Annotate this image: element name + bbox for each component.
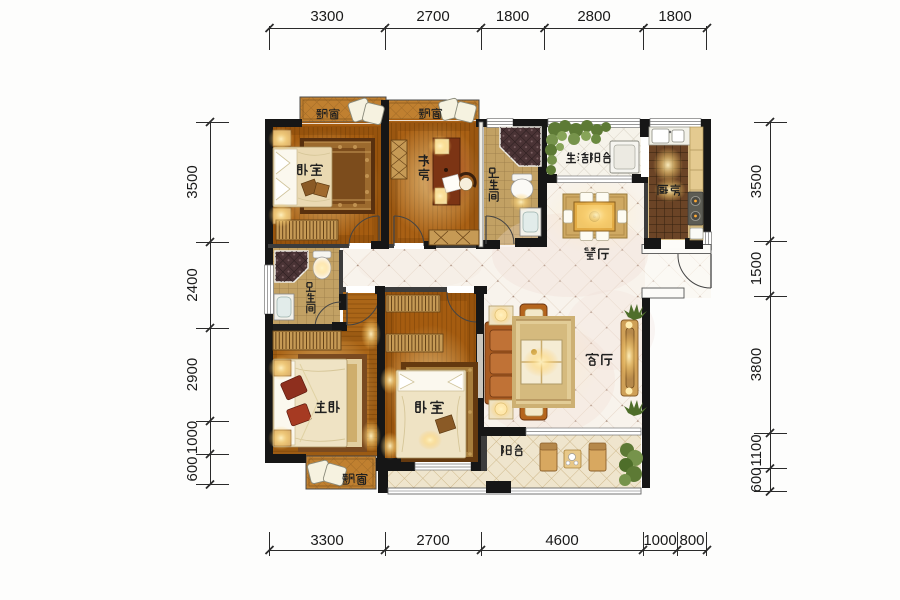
svg-text:1000: 1000 <box>184 421 201 454</box>
svg-text:1800: 1800 <box>658 8 691 25</box>
svg-text:3500: 3500 <box>184 165 201 198</box>
svg-text:1500: 1500 <box>748 252 765 285</box>
svg-text:600: 600 <box>184 456 201 481</box>
svg-text:3800: 3800 <box>748 348 765 381</box>
svg-text:3300: 3300 <box>310 532 343 549</box>
svg-text:1100: 1100 <box>748 434 765 466</box>
svg-text:600: 600 <box>748 467 765 492</box>
svg-text:2700: 2700 <box>416 8 449 25</box>
svg-text:2800: 2800 <box>577 8 610 25</box>
svg-text:2700: 2700 <box>416 532 449 549</box>
svg-text:2900: 2900 <box>184 358 201 391</box>
svg-text:1000: 1000 <box>643 532 676 549</box>
svg-text:4600: 4600 <box>545 532 578 549</box>
svg-text:1800: 1800 <box>496 8 529 25</box>
svg-text:2400: 2400 <box>184 268 201 301</box>
svg-text:3300: 3300 <box>310 8 343 25</box>
svg-text:800: 800 <box>679 532 704 549</box>
svg-text:3500: 3500 <box>748 165 765 198</box>
